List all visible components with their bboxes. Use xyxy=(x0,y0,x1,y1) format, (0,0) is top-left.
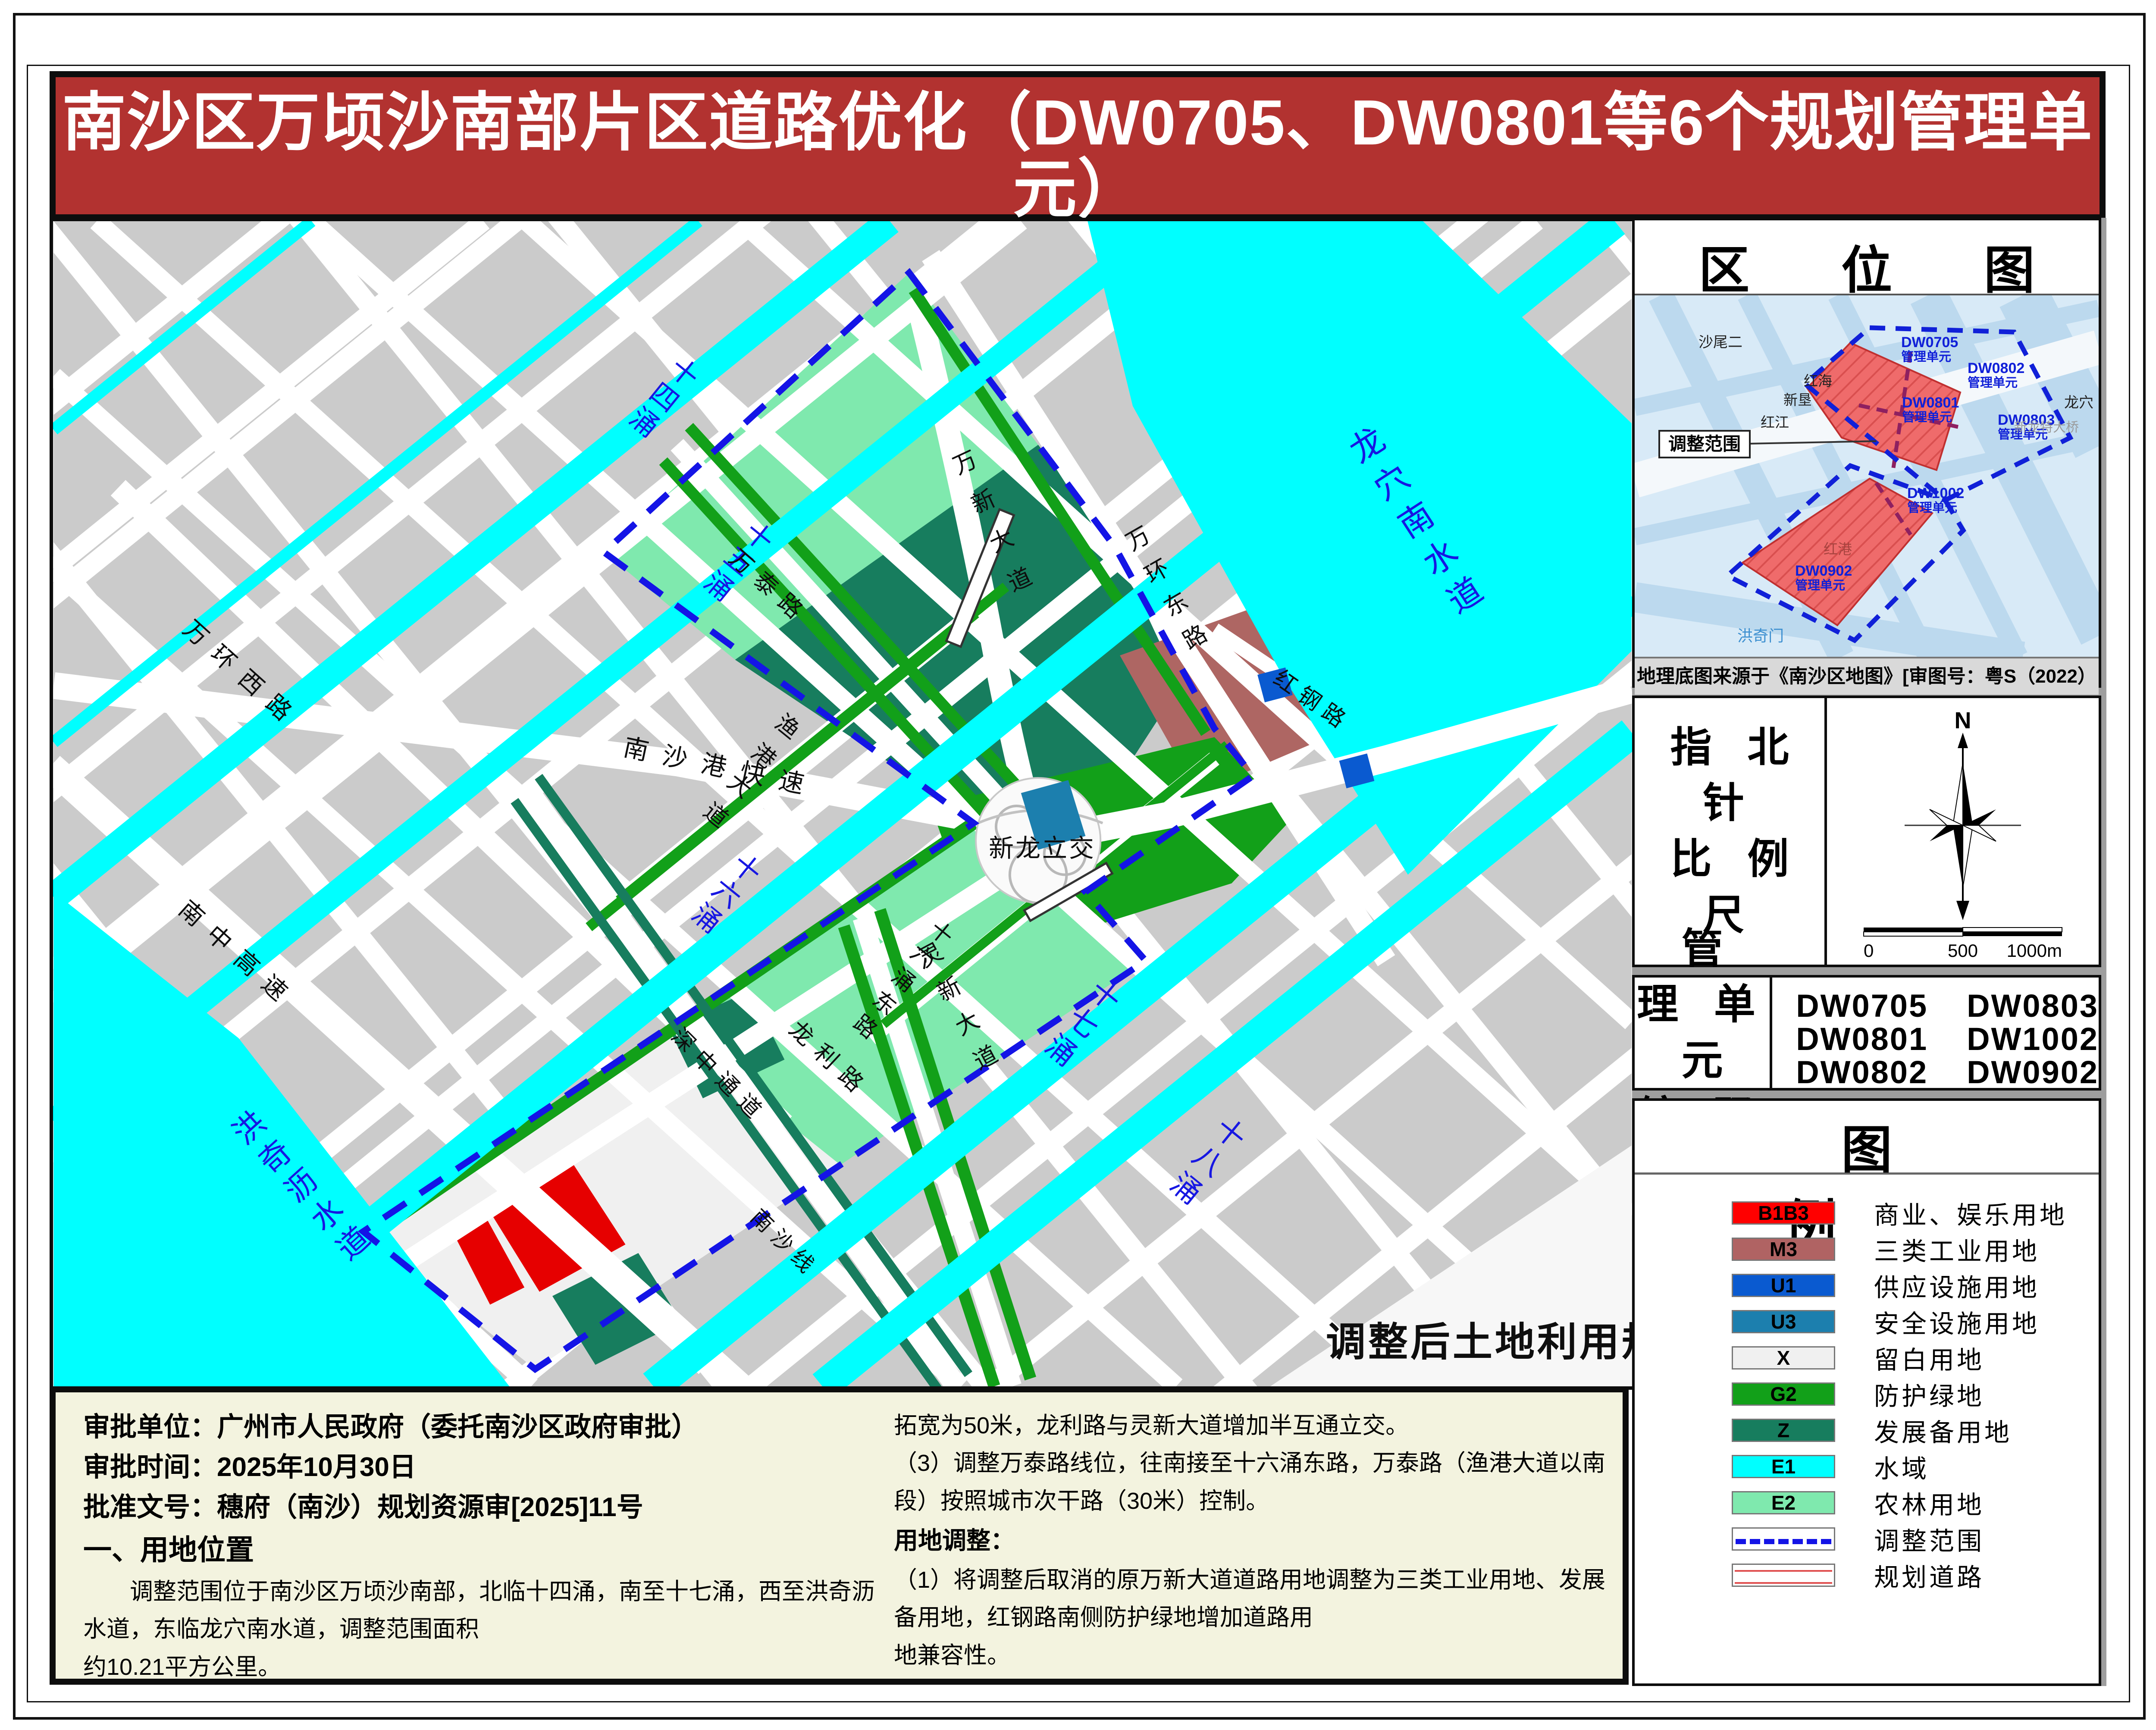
map-label: 红钢路 xyxy=(1269,666,1355,736)
legend-row: 规划道路 xyxy=(1732,1563,2099,1588)
minimap-place-label: 红海 xyxy=(1804,374,1832,388)
notes-panel: 审批单位：广州市人民政府（委托南沙区政府审批）审批时间：2025年10月30日批… xyxy=(50,1386,1629,1685)
legend-label: 三类工业用地 xyxy=(1874,1231,2040,1267)
minimap-place-label: 红港 xyxy=(1824,542,1852,556)
notes-line: （2）结合道路调整优化沿线两侧用地，增加万新大道两侧防护绿地，根据道路线位微调河… xyxy=(894,1674,1623,1685)
map-label: 新龙立交 xyxy=(989,836,1096,862)
minimap-unit-label: DW0902管理单元 xyxy=(1795,564,1852,592)
basemap-caption: 地理底图来源于《南沙区地图》[审图号：粤S（2022）012号] xyxy=(1635,657,2099,695)
map-label: 十八涌 xyxy=(1159,1109,1250,1211)
unit-code: DW0705 xyxy=(1796,990,1928,1023)
map-label: 洪奇沥水道 xyxy=(223,1107,377,1273)
map-label: 十四涌 xyxy=(620,351,703,443)
minimap-place-label: 红江 xyxy=(1761,415,1789,429)
legend-swatch: X xyxy=(1732,1346,1835,1370)
legend-swatch: Z xyxy=(1732,1419,1835,1442)
map-label: 十六涌 xyxy=(683,846,765,939)
sidebar: 区 位 图 xyxy=(1632,218,2106,1686)
legend-row: X留白用地 xyxy=(1732,1345,2099,1370)
unit-code: DW0801 xyxy=(1796,1023,1928,1056)
legend-panel: 图 例 B1B3商业、娱乐用地M3三类工业用地U1供应设施用地U3安全设施用地X… xyxy=(1632,1098,2101,1686)
legend-row: B1B3商业、娱乐用地 xyxy=(1732,1200,2099,1225)
map-label: 万环东路 xyxy=(1119,523,1216,667)
unit-code: DW0902 xyxy=(1967,1056,2099,1089)
legend-row: M3三类工业用地 xyxy=(1732,1237,2099,1262)
minimap-unit-label: DW0705管理单元 xyxy=(1901,335,1958,364)
legend-row: G2防护绿地 xyxy=(1732,1382,2099,1407)
compass-rose: N xyxy=(1827,698,2099,963)
map-label: 南中高速 xyxy=(174,896,301,1014)
notes-line: 用地调整： xyxy=(894,1520,1623,1561)
minimap-unit-label: DW1002管理单元 xyxy=(1907,486,1964,514)
minimap-place-label: 龙穴 xyxy=(2064,395,2093,410)
notes-line: 审批时间：2025年10月30日 xyxy=(83,1447,877,1487)
legend-row: U3安全设施用地 xyxy=(1732,1309,2099,1334)
map-label: 南沙线 xyxy=(746,1205,823,1282)
legend-row: E1水域 xyxy=(1732,1454,2099,1479)
legend-label: 发展备用地 xyxy=(1874,1412,2012,1448)
land-use-map: 十四涌十五涌十六涌十七涌十八涌龙穴南水道洪奇沥水道万环西路南中高速南沙港快速新龙… xyxy=(50,218,1636,1390)
scale-bar xyxy=(1864,928,2062,936)
scope-callout: 调整范围 xyxy=(1658,430,1751,458)
legend-swatch: E1 xyxy=(1732,1455,1835,1478)
map-label: 调整后土地利用规划图 xyxy=(1326,1322,1636,1363)
legend-swatch-boundary xyxy=(1732,1527,1835,1551)
map-label: 灵新大道 xyxy=(912,939,1006,1088)
compass-cell: N xyxy=(1827,698,2099,965)
map-label: 万新大道 xyxy=(946,447,1041,614)
title-line-1: 南沙区万顷沙南部片区道路优化（DW0705、DW0801等6个规划管理单元） xyxy=(56,89,2100,223)
map-label: 万环西路 xyxy=(179,616,306,734)
legend-label: 水域 xyxy=(1874,1448,1929,1485)
legend-row: 调整范围 xyxy=(1732,1526,2099,1551)
notes-right-column: 拓宽为50米，龙利路与灵新大道增加半互通立交。（3）调整万泰路线位，往南接至十六… xyxy=(894,1407,1623,1685)
poster-page: 南沙区万顷沙南部片区道路优化（DW0705、DW0801等6个规划管理单元） 控… xyxy=(0,0,2156,1730)
unit-codes-list: DW0705DW0801DW0802DW0803DW1002DW0902 xyxy=(1772,978,2099,1089)
legend-label: 农林用地 xyxy=(1874,1485,1984,1521)
unit-codes-title: 管 理 单 元 编 码 xyxy=(1635,978,1772,1088)
minimap-place-label: 洪奇门 xyxy=(1737,628,1784,644)
minimap-place-label: 沙尾二 xyxy=(1698,335,1742,350)
minimap-unit-label: DW0802管理单元 xyxy=(1968,361,2024,389)
legend-row: U1供应设施用地 xyxy=(1732,1273,2099,1298)
scale-tick-1000: 1000m xyxy=(2007,940,2062,961)
notes-line: 一、用地位置 xyxy=(83,1527,877,1573)
unit-codes-panel: 管 理 单 元 编 码 DW0705DW0801DW0802DW0803DW10… xyxy=(1632,975,2101,1091)
north-letter: N xyxy=(1955,708,1971,733)
notes-line: 审批单位：广州市人民政府（委托南沙区政府审批） xyxy=(83,1407,877,1447)
notes-left-column: 审批单位：广州市人民政府（委托南沙区政府审批）审批时间：2025年10月30日批… xyxy=(83,1407,877,1685)
legend-label: 安全设施用地 xyxy=(1874,1304,2040,1340)
location-minimap: 调整范围 DW0705管理单元DW0802管理单元DW0801管理单元DW080… xyxy=(1635,294,2099,657)
legend-row: E2农林用地 xyxy=(1732,1490,2099,1515)
notes-line: 拓宽为50米，龙利路与灵新大道增加半互通立交。 xyxy=(894,1407,1623,1445)
legend-swatch-road xyxy=(1732,1564,1835,1587)
legend-swatch: M3 xyxy=(1732,1238,1835,1261)
map-label: 十七涌 xyxy=(1034,972,1125,1073)
legend-title: 图 例 xyxy=(1635,1101,2099,1175)
legend-swatch: U1 xyxy=(1732,1274,1835,1297)
legend-label: 供应设施用地 xyxy=(1874,1267,2040,1304)
unit-code: DW1002 xyxy=(1967,1023,2099,1056)
map-label: 龙穴南水道 xyxy=(1340,422,1492,629)
legend-label: 调整范围 xyxy=(1874,1521,1984,1557)
scale-tick-500: 500 xyxy=(1948,940,1978,961)
map-label: 深中通道 xyxy=(667,1024,771,1128)
scale-tick-0: 0 xyxy=(1864,940,1874,961)
legend-swatch: B1B3 xyxy=(1732,1201,1835,1225)
legend-label: 留白用地 xyxy=(1874,1340,1984,1376)
minimap-place-label: 新龙特大桥 xyxy=(2014,421,2079,434)
minimap-unit-label: DW0801管理单元 xyxy=(1902,395,1959,424)
legend-label: 商业、娱乐用地 xyxy=(1874,1195,2067,1231)
unit-code: DW0802 xyxy=(1796,1056,1928,1089)
notes-line: （3）调整万泰路线位，往南接至十六涌东路，万泰路（渔港大道以南段）按照城市次干路… xyxy=(894,1445,1623,1520)
notes-line: 约10.21平方公里。 xyxy=(83,1649,877,1685)
notes-line: 调整范围位于南沙区万顷沙南部，北临十四涌，南至十七涌，西至洪奇沥水道，东临龙穴南… xyxy=(83,1573,877,1649)
map-label: 万泰路 xyxy=(724,545,814,630)
legend-swatch: G2 xyxy=(1732,1382,1835,1406)
location-title: 区 位 图 xyxy=(1635,220,2099,294)
legend-label: 防护绿地 xyxy=(1874,1376,1984,1412)
notes-line: 批准文号：穗府（南沙）规划资源审[2025]11号 xyxy=(83,1487,877,1527)
title-banner: 南沙区万顷沙南部片区道路优化（DW0705、DW0801等6个规划管理单元） 控… xyxy=(50,71,2106,220)
notes-line: 地兼容性。 xyxy=(894,1637,1623,1674)
legend-label: 规划道路 xyxy=(1874,1557,1984,1593)
minimap-place-label: 新垦 xyxy=(1783,393,1812,407)
notes-line: （1）将调整后取消的原万新大道道路用地调整为三类工业用地、发展备用地，红钢路南侧… xyxy=(894,1561,1623,1637)
location-panel: 区 位 图 xyxy=(1632,218,2101,688)
map-label-layer: 十四涌十五涌十六涌十七涌十八涌龙穴南水道洪奇沥水道万环西路南中高速南沙港快速新龙… xyxy=(53,221,1632,1386)
unit-code: DW0803 xyxy=(1967,990,2099,1023)
legend-swatch: U3 xyxy=(1732,1310,1835,1333)
legend-row: Z发展备用地 xyxy=(1732,1418,2099,1443)
legend-swatch: E2 xyxy=(1732,1491,1835,1514)
